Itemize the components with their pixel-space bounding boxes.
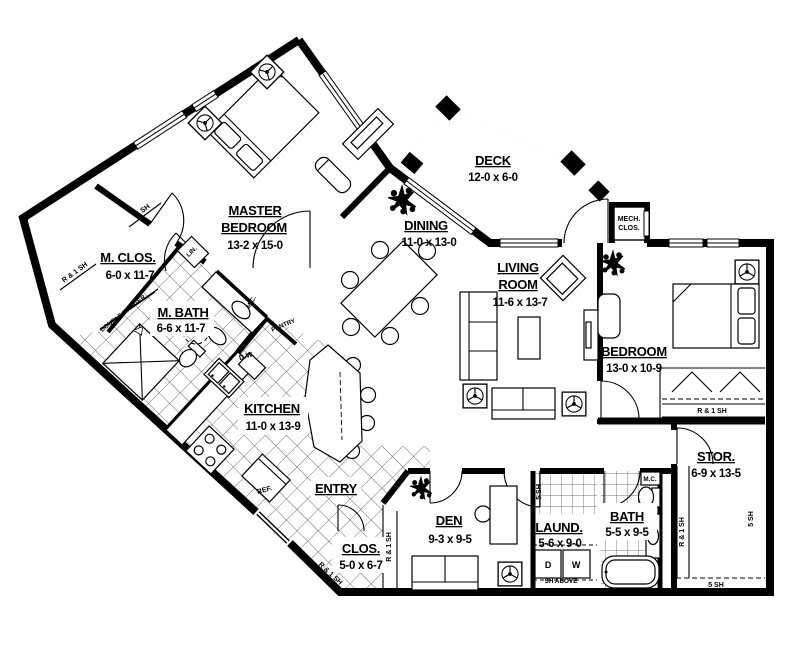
svg-text:DECK: DECK [475,153,512,168]
window [134,111,187,149]
desk-chair [475,506,491,522]
svg-text:BATH: BATH [610,509,644,524]
svg-text:BEDROOM: BEDROOM [601,344,667,359]
svg-text:ENTRY: ENTRY [315,481,358,496]
svg-text:LIVING: LIVING [497,260,539,275]
shelf-above-label: SH ABOVE [545,578,578,585]
plant-icon [388,186,416,214]
desk [490,486,517,544]
room-label-master-closet: M. CLOS. 6-0 x 11-7 [100,250,155,282]
sofa [460,292,497,380]
master-closet-door [150,193,184,242]
bar-stool [361,388,376,403]
laundry-fixtures [533,545,597,580]
plant-icon [410,477,432,499]
shelf-label-5sh-stor-right: 5 SH [748,511,755,527]
shelf-label-r1sh-mclos: R & 1 SH [61,261,89,284]
loveseat [492,388,555,419]
bedroom-furniture [598,251,765,418]
svg-text:11-0 x 13-9: 11-0 x 13-9 [246,421,301,433]
shelf-label-r1sh-bedroom-closet: R & 1 SH [697,408,727,415]
hanger-chevron-icon [720,372,760,392]
den-sofa [412,556,478,590]
dining-chair [342,272,359,289]
deck-structure [390,95,612,203]
svg-text:BEDROOM: BEDROOM [221,220,287,235]
mech-closet [614,207,649,240]
dryer-label: D [545,560,552,570]
svg-text:CLOS.: CLOS. [342,541,380,556]
deck-door [564,199,608,243]
bed [673,284,759,348]
svg-text:DINING: DINING [404,218,448,233]
svg-text:13-2 x 15-0: 13-2 x 15-0 [227,240,283,252]
kitchen-island [305,345,376,462]
svg-text:LAUND.: LAUND. [535,520,582,535]
room-label-storage: STOR. 6-9 x 13-5 [691,449,741,480]
room-label-den: DEN 9-3 x 9-5 [428,513,472,546]
shelf-label-r1sh-closet-east: R & 1 SH [386,532,393,562]
hanger-chevron-icon [672,372,712,392]
tv-console [584,310,598,360]
floor-plan-drawing: MASTER BEDROOM 13-2 x 15-0 M. CLOS. 6-0 … [0,0,809,659]
bathtub [602,556,659,588]
armchair [540,255,585,300]
shelf-label-r1sh-stor: R & 1 SH [679,517,686,547]
svg-text:ROOM: ROOM [498,277,537,292]
plant-icon [601,251,625,275]
svg-text:13-0 x 10-9: 13-0 x 10-9 [606,363,662,375]
room-label-deck: DECK 12-0 x 6-0 [468,153,517,184]
window [500,239,558,247]
svg-text:DEN: DEN [436,513,463,528]
svg-text:6-9 x 13-5: 6-9 x 13-5 [691,468,741,480]
coffee-table [518,317,540,359]
deck-post [401,152,424,174]
room-label-dining: DINING 11-0 x 13-0 [402,218,457,249]
floor-plan-canvas: MASTER BEDROOM 13-2 x 15-0 M. CLOS. 6-0 … [0,0,809,659]
svg-text:CLOS.: CLOS. [618,225,639,232]
room-label-bedroom: BEDROOM 13-0 x 10-9 [601,344,667,375]
shelf-label-5sh-laundry: 5 SH [536,484,543,500]
room-label-master-bedroom: MASTER BEDROOM 13-2 x 15-0 [221,203,287,252]
speaker-icon [562,392,586,416]
dining-chair [412,298,429,315]
svg-text:9-3 x 9-5: 9-3 x 9-5 [428,534,472,546]
speaker-icon [498,562,522,586]
svg-text:MASTER: MASTER [228,203,282,218]
bedroom-door [601,381,639,419]
dresser [598,294,620,338]
window [707,239,739,247]
svg-text:5-0 x 6-7: 5-0 x 6-7 [339,560,382,572]
svg-text:KITCHEN: KITCHEN [244,401,300,416]
speaker-icon [735,260,759,284]
svg-text:6-6 x 11-7: 6-6 x 11-7 [157,323,206,335]
svg-text:MECH.: MECH. [618,216,641,223]
room-label-laundry: LAUND. 5-6 x 9-0 [535,520,582,550]
svg-text:M. BATH: M. BATH [157,305,208,320]
dining-chair [382,328,399,345]
svg-text:M. CLOS.: M. CLOS. [100,250,155,265]
speaker-icon [463,384,487,408]
svg-text:11-6 x 13-7: 11-6 x 13-7 [493,297,548,309]
svg-text:12-0 x 6-0: 12-0 x 6-0 [468,172,517,184]
window [669,239,703,247]
washer-label: W [572,560,581,570]
svg-text:11-0 x 13-0: 11-0 x 13-0 [402,237,457,249]
dining-set [341,241,437,345]
dining-chair [343,319,360,336]
master-bench [312,154,353,195]
room-label-entry: ENTRY [315,481,358,496]
den-door [430,471,462,503]
svg-text:5-6 x 9-0: 5-6 x 9-0 [538,538,581,550]
medicine-cabinet-label-bath: M.C. [643,476,657,483]
svg-text:6-0 x 11-7: 6-0 x 11-7 [106,270,155,282]
room-label-living-room: LIVING ROOM 11-6 x 13-7 [493,260,548,309]
dining-chair [372,242,389,259]
svg-text:5-5 x 9-5: 5-5 x 9-5 [605,527,649,539]
shelf-label-5sh-stor-bottom: 5 SH [708,582,724,589]
svg-text:STOR.: STOR. [697,449,735,464]
